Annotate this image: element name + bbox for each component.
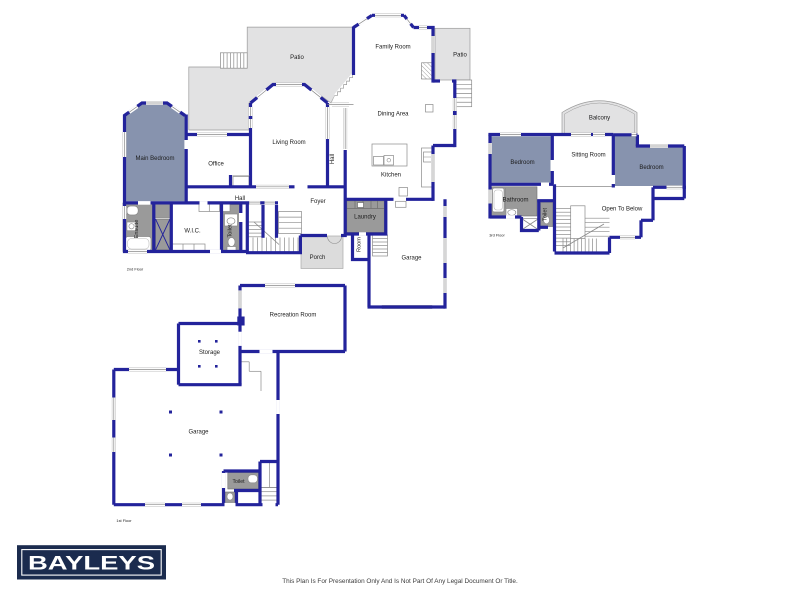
svg-text:BAYLEYS: BAYLEYS bbox=[28, 554, 155, 575]
svg-text:Open To Below: Open To Below bbox=[602, 207, 643, 213]
svg-text:Room: Room bbox=[357, 237, 363, 252]
svg-text:Garage: Garage bbox=[188, 430, 209, 436]
svg-text:Toilet: Toilet bbox=[228, 224, 234, 238]
svg-text:Balcony: Balcony bbox=[589, 116, 610, 122]
svg-text:Main Bedroom: Main Bedroom bbox=[135, 156, 174, 162]
svg-text:Patio: Patio bbox=[453, 53, 467, 59]
svg-text:3rd Floor: 3rd Floor bbox=[489, 233, 505, 238]
svg-text:Sitting Room: Sitting Room bbox=[571, 153, 605, 159]
svg-text:2nd Floor: 2nd Floor bbox=[127, 267, 144, 272]
svg-text:1st Floor: 1st Floor bbox=[116, 518, 132, 523]
svg-text:Living Room: Living Room bbox=[272, 140, 305, 146]
svg-text:W.I.C.: W.I.C. bbox=[184, 229, 201, 235]
svg-text:Bedroom: Bedroom bbox=[510, 160, 534, 166]
svg-text:Kitchen: Kitchen bbox=[381, 173, 401, 179]
svg-text:Toilet: Toilet bbox=[543, 208, 549, 222]
svg-text:Dining Area: Dining Area bbox=[377, 112, 409, 118]
svg-text:Office: Office bbox=[208, 162, 224, 168]
svg-text:Bedroom: Bedroom bbox=[639, 165, 663, 171]
svg-text:Foyer: Foyer bbox=[310, 199, 325, 205]
svg-text:Hall: Hall bbox=[235, 196, 245, 202]
svg-text:Toilet: Toilet bbox=[232, 479, 245, 485]
svg-text:Ensuite: Ensuite bbox=[134, 220, 140, 239]
svg-text:Patio: Patio bbox=[290, 55, 304, 61]
svg-text:Porch: Porch bbox=[310, 255, 326, 261]
svg-text:Hall: Hall bbox=[330, 154, 336, 164]
svg-text:Storage: Storage bbox=[199, 350, 221, 356]
svg-text:This Plan Is For Presentation: This Plan Is For Presentation Only And I… bbox=[282, 578, 518, 585]
svg-text:Recreation Room: Recreation Room bbox=[270, 313, 317, 319]
svg-text:Laundry: Laundry bbox=[354, 215, 376, 221]
svg-text:Family Room: Family Room bbox=[375, 45, 410, 51]
svg-text:Garage: Garage bbox=[401, 256, 422, 262]
svg-text:Bathroom: Bathroom bbox=[502, 198, 528, 204]
